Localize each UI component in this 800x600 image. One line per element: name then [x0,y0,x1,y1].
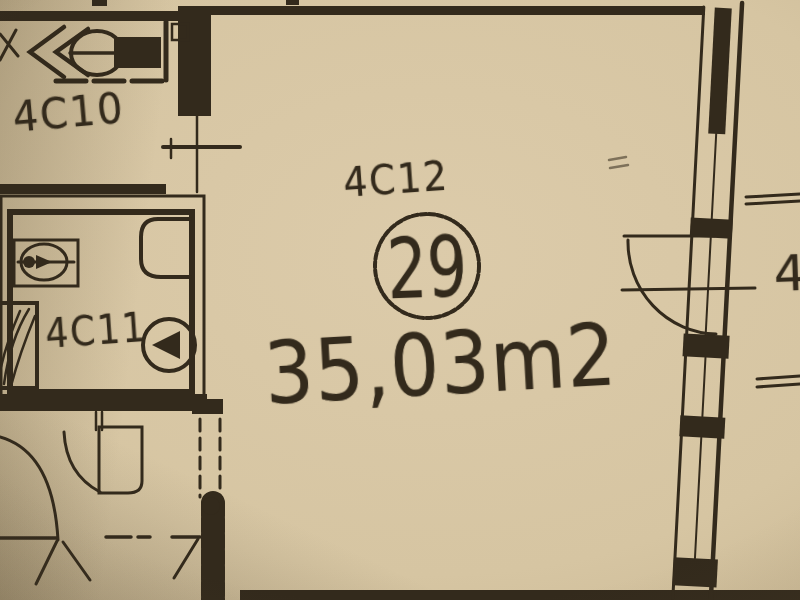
room-label-4c12: 4C12 [342,156,450,204]
wall-top-main [186,6,705,15]
room-label-4c11: 4C11 [44,307,148,355]
corner-fixture-icon [141,219,190,277]
wall-bottom [240,590,800,600]
divider-line [622,288,755,290]
wc-4c10-fixtures [0,22,188,81]
door-frame [99,427,142,493]
corner-blob [192,399,223,414]
room-number: 29 [384,225,469,312]
hall-doors [0,412,200,584]
door-swing-arc [64,432,100,492]
swing-line [36,541,57,584]
wall-junction-cross [163,116,240,192]
cistern-block [114,37,161,68]
wall-vertical-upper [178,6,211,116]
wall-4c10-bottom [0,184,166,194]
edge-tick [92,0,107,6]
shower-tray-icon [0,303,37,388]
room-label-4c10: 4C10 [11,86,126,139]
wall-top-left [0,11,186,21]
window-wall [670,1,747,600]
floor-plan-photo: 4C10 4C11 4C12 29 35,03m2 4 [0,0,800,600]
room-area: 35,03m2 [262,311,619,417]
door-swing-arc [628,240,716,334]
edge-tick [286,0,299,5]
door-swing-arc [0,437,58,540]
stray-mark [609,157,628,168]
swing-line [63,542,90,580]
bathroom-bottom-bar [0,394,207,411]
cropped-x-mark [0,30,18,60]
adjacent-room-label-partial: 4 [773,248,800,299]
swing-line [174,539,198,578]
balcony-door [624,236,716,334]
toilet-icon [143,319,195,371]
washbasin-icon [14,240,78,286]
dashed-partition [200,419,220,600]
